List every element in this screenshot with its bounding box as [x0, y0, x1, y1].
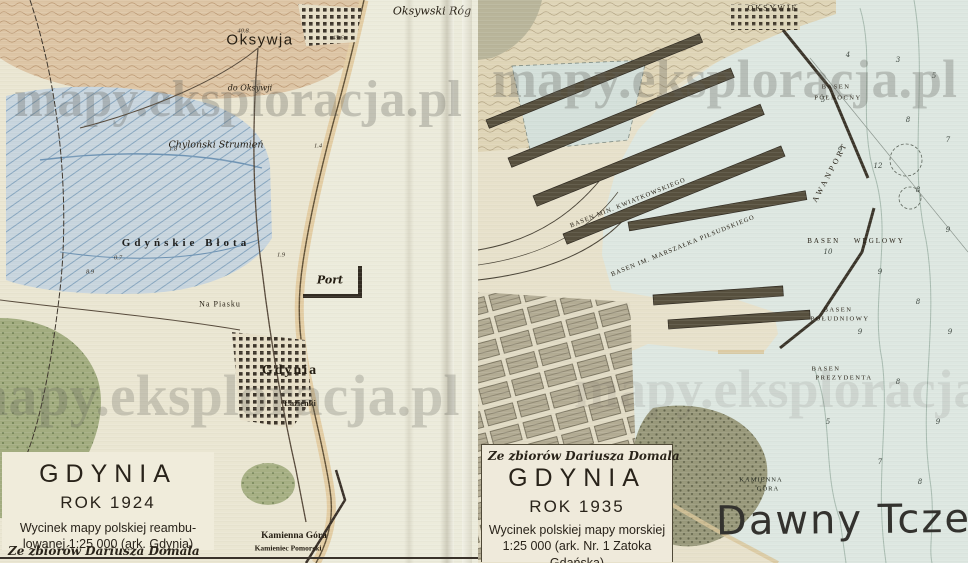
- legend-1935-title: GDYNIA: [482, 464, 672, 493]
- dawny-tczew-overlay: Dawny Tczew: [716, 495, 968, 544]
- label-basen-polnocny: PÓŁNOCNY: [814, 95, 861, 102]
- legend-1935-year: ROK 1935: [482, 497, 672, 517]
- label-port: Port: [317, 274, 343, 287]
- spot-height: 1.4: [314, 143, 322, 150]
- map-sheet-1935: mapy.eksploracja.pl mapy.eksploracja.pl …: [478, 0, 968, 563]
- label-kamieniec-pomorski: Kamieniec Pomorski: [255, 544, 322, 553]
- depth-sounding: 8: [916, 298, 920, 306]
- spot-height: 45.6: [332, 35, 343, 42]
- legend-1935-desc-line2: 1:25 000 (ark. Nr. 1 Zatoka: [482, 538, 672, 554]
- label-basen-poludniowy: POŁUDNIOWY: [810, 316, 869, 323]
- depth-sounding: 3: [896, 56, 900, 64]
- legend-1935-desc-line1: Wycinek polskiej mapy morskiej: [482, 522, 672, 538]
- legend-1924-title: GDYNIA: [2, 460, 214, 489]
- depth-sounding: 5: [826, 418, 830, 426]
- legend-1935-desc-line3: Gdańska): [482, 555, 672, 563]
- spot-height: 1.8: [169, 146, 177, 153]
- depth-sounding: 9: [878, 268, 882, 276]
- label-gdynskie-blota: Gdyńskie Błota: [122, 237, 250, 249]
- depth-sounding: 8: [916, 186, 920, 194]
- label-do-oksywji: do Oksywji: [228, 84, 272, 93]
- credit-1924: Ze zbiorów Dariusza Domala: [8, 544, 200, 558]
- spot-height: 1.9: [277, 252, 285, 259]
- label-kamienna-gora-1935: KAMIENNA: [739, 477, 782, 484]
- legend-1935: Ze zbiorów Dariusza Domala GDYNIA ROK 19…: [481, 444, 673, 562]
- legend-1924-desc-line1: Wycinek mapy polskiej reambu-: [2, 520, 214, 536]
- forest-kamienna-gora: [241, 463, 295, 505]
- depth-sounding: 4: [846, 51, 850, 59]
- wetland-gdynskie-blota: [6, 87, 272, 294]
- depth-sounding: 9: [858, 328, 862, 336]
- depth-sounding: 8: [918, 478, 922, 486]
- label-basen-prezydenta: PREZYDENTA: [815, 375, 872, 382]
- label-lazienki: Łazienki: [284, 398, 316, 408]
- label-kamienna-gora-1935: GÓRA: [757, 486, 779, 493]
- map-sheet-1924: mapy.eksploracja.pl mapy.eksploracja.pl …: [0, 0, 478, 563]
- spot-height: 40.8: [237, 28, 248, 35]
- depth-sounding: 9: [936, 418, 940, 426]
- depth-sounding: 5: [932, 72, 936, 80]
- label-kamienna-gora: Kamienna Góra: [261, 531, 327, 541]
- depth-sounding: 9: [946, 226, 950, 234]
- depth-sounding: 8: [896, 378, 900, 386]
- depth-sounding: 7: [878, 458, 882, 466]
- label-gdynia: Gdynia: [262, 363, 318, 379]
- legend-1924: GDYNIA ROK 1924 Wycinek mapy polskiej re…: [2, 452, 214, 550]
- depth-sounding: 10: [824, 248, 833, 256]
- label-basen-prezydenta: BASEN: [812, 366, 841, 373]
- credit-1935: Ze zbiorów Dariusza Domala: [482, 445, 672, 463]
- label-basen-poludniowy: BASEN: [824, 307, 853, 314]
- label-oksywski-rog: Oksywski Róg: [393, 5, 471, 18]
- label-na-piasku: Na Piasku: [199, 300, 241, 309]
- label-basen-weglowy: BASEN WĘGLOWY: [807, 237, 905, 245]
- label-basen-polnocny: BASEN: [822, 84, 851, 91]
- village-oksywja: [298, 4, 362, 46]
- spot-height: 0.7: [114, 255, 122, 262]
- depth-sounding: 9: [948, 328, 952, 336]
- scanned-maps-composite: mapy.eksploracja.pl mapy.eksploracja.pl …: [0, 0, 968, 563]
- depth-sounding: 8: [906, 116, 910, 124]
- legend-1924-year: ROK 1924: [2, 493, 214, 513]
- spot-height: 8.9: [86, 269, 94, 276]
- label-oksywie: OKSYWIE: [748, 4, 799, 13]
- depth-sounding: 12: [874, 162, 883, 170]
- depth-sounding: 7: [946, 136, 950, 144]
- label-chylonski-strumien: Chyloński Strumień: [168, 140, 263, 151]
